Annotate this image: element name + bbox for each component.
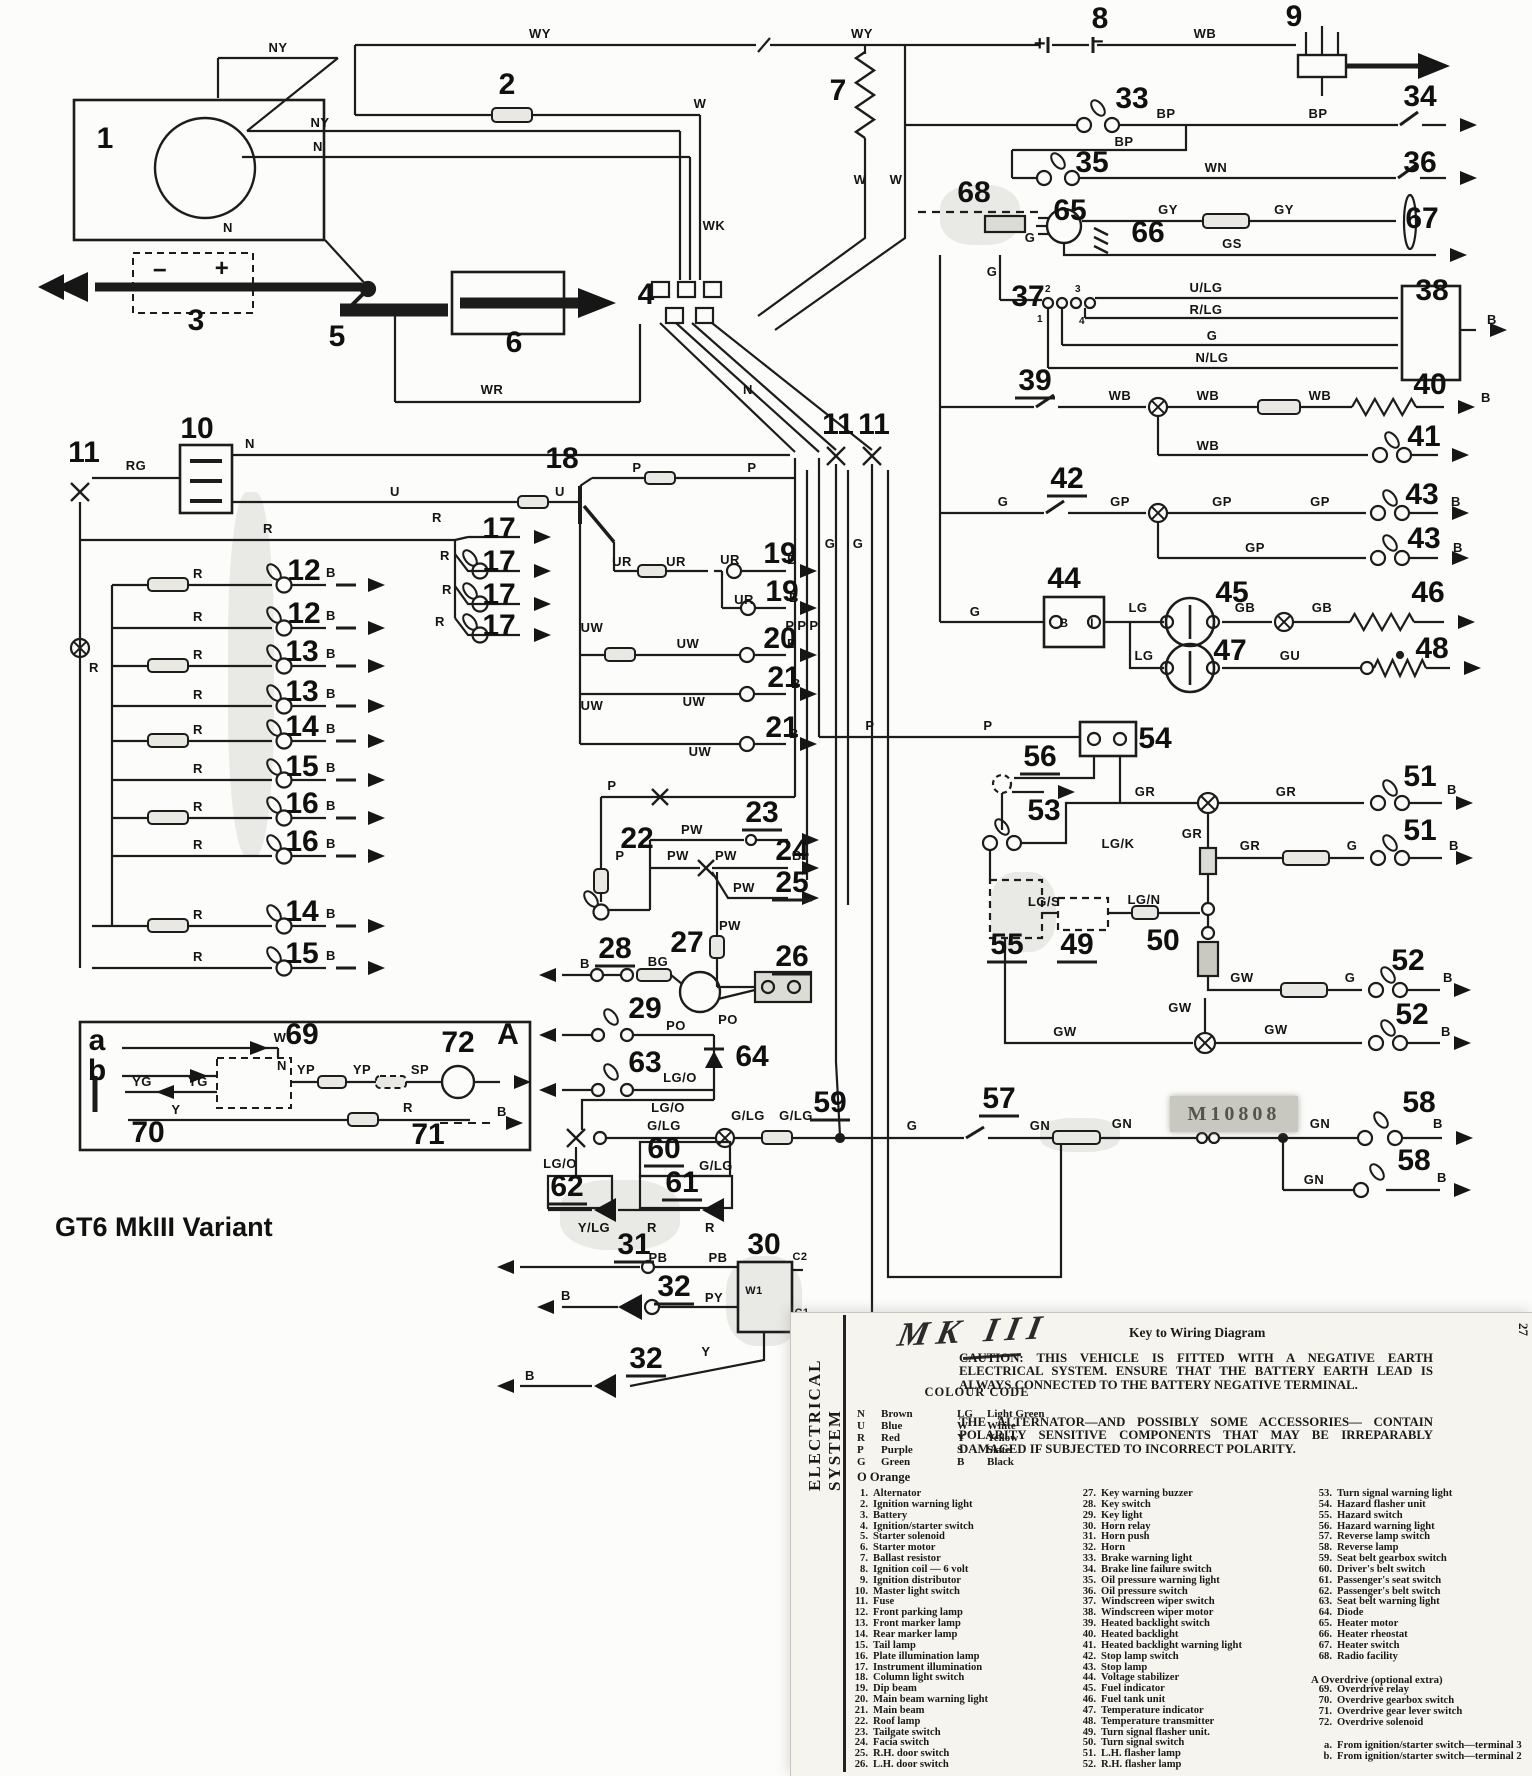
terminal: [1057, 298, 1067, 308]
component-number-label: 3.: [847, 1511, 873, 1522]
wire-label: G: [987, 264, 998, 279]
component-name: Hazard switch: [1337, 1511, 1403, 1522]
terminal: [1197, 1133, 1207, 1143]
wire-label: G: [970, 604, 981, 619]
component-number: 15: [285, 937, 318, 970]
fuse-icon: [638, 565, 666, 577]
page-number: 27: [1515, 1323, 1531, 1336]
wire-label: R: [432, 510, 442, 525]
wire-label: N: [743, 382, 753, 397]
component-number: 63: [628, 1046, 661, 1079]
component-number: 53: [1027, 794, 1060, 827]
component-number: 26: [775, 940, 808, 973]
wire-label: R: [193, 722, 203, 737]
wire-label: N: [245, 436, 255, 451]
wire-label: R: [89, 660, 99, 675]
colour-code-cell: Light Green: [987, 1408, 1087, 1420]
arrow-right-icon: [1456, 796, 1473, 810]
fuse-icon: [1203, 214, 1249, 228]
wire-label: GY: [1158, 202, 1178, 217]
page: { "title": "GT6 MkIII Variant", "stamp":…: [0, 0, 1532, 1776]
arrow-right-icon: [800, 564, 817, 578]
wire-label: B: [525, 1368, 535, 1383]
component-name: Passenger's seat switch: [1337, 1576, 1441, 1587]
lamp-icon: [1371, 796, 1385, 810]
wire-label: R: [193, 761, 203, 776]
arrow-right-icon: [368, 578, 385, 592]
wire-label: P: [809, 618, 818, 633]
wire-label: R: [193, 647, 203, 662]
wire-label: GR: [1182, 826, 1203, 841]
arrow-right-icon: [368, 811, 385, 825]
wire-label: N: [277, 1058, 287, 1073]
wire-label: BP: [1114, 134, 1133, 149]
terminal: [1105, 118, 1119, 132]
component-number: 40: [1413, 368, 1446, 401]
arrow-left-icon: [539, 1028, 556, 1042]
fuse-icon: [148, 919, 188, 932]
wire-label: R: [193, 609, 203, 624]
component-number-label: 52.: [1075, 1760, 1101, 1771]
colour-code-cell: P: [857, 1444, 881, 1456]
wire-segment: [671, 975, 682, 984]
diagram-title: GT6 MkIII Variant: [55, 1212, 273, 1243]
component-number: 65: [1053, 194, 1086, 227]
arrow-right-icon: [1464, 661, 1481, 675]
wire-label: Y: [701, 1344, 710, 1359]
wire-label: P: [865, 718, 874, 733]
terminal: [591, 969, 603, 981]
wire-label: GN: [1310, 1116, 1331, 1131]
component-number: 18: [545, 442, 578, 475]
arrowhead-icon: [156, 1085, 174, 1099]
solenoid-icon: [442, 1066, 474, 1098]
component-number: 11: [858, 408, 890, 441]
wire-label: W: [694, 96, 707, 111]
handwritten-mark: MK III: [894, 1309, 1052, 1355]
component-number: 50: [1146, 924, 1179, 957]
lamp-petal-icon: [265, 683, 284, 703]
lamp-icon: [1395, 796, 1409, 810]
arrow-right-icon: [1458, 615, 1475, 629]
component-list-item: 9.Ignition distributor: [847, 1576, 1077, 1587]
wire-label: PW: [667, 848, 689, 863]
wire-label: UW: [581, 698, 604, 713]
wire-label: LG: [1128, 600, 1147, 615]
wire-label: −: [153, 257, 168, 284]
colour-code-row: UBlueWWhite: [857, 1420, 1097, 1432]
component-name: L.H. door switch: [873, 1760, 949, 1771]
terminal: [1071, 298, 1081, 308]
component-number: 72: [441, 1026, 474, 1059]
wire-label: B: [1443, 970, 1453, 985]
component-number: 35: [1075, 146, 1108, 179]
wire-label: GU: [1280, 648, 1301, 663]
component-number: 51: [1403, 760, 1436, 793]
wire-label: B: [1449, 838, 1459, 853]
component-name: Overdrive solenoid: [1337, 1718, 1423, 1729]
component-box: [1200, 848, 1216, 874]
wire-label: B: [326, 565, 336, 580]
wire-segment: [718, 990, 755, 999]
component-number: 28: [598, 932, 631, 965]
wire-segment: [1046, 501, 1064, 513]
terminal: [1202, 927, 1214, 939]
wire-label: 2: [1045, 284, 1051, 295]
wire-label: R: [193, 907, 203, 922]
wire-label: R/LG: [1189, 302, 1222, 317]
wire-label: R: [442, 582, 452, 597]
component-number-label: 61.: [1311, 1576, 1337, 1587]
wire-label: G/LG: [699, 1158, 733, 1173]
fuse-icon: [492, 108, 532, 122]
terminal: [1209, 1133, 1219, 1143]
arrow-right-icon: [1454, 983, 1471, 997]
terminal: [1354, 1183, 1368, 1197]
component-number: 2: [499, 68, 516, 101]
component-number: a: [89, 1024, 106, 1057]
fuse-icon: [318, 1076, 346, 1088]
wire-label: G: [1347, 838, 1358, 853]
terminal: [621, 1029, 633, 1041]
diode-icon: [594, 1198, 616, 1222]
arrow-right-icon: [1452, 448, 1469, 462]
component-list-item: 29.Key light: [1075, 1511, 1305, 1522]
arrow-left-icon: [539, 968, 556, 982]
component-number: 61: [665, 1166, 698, 1199]
component-number: 14: [285, 710, 319, 743]
wire-segment: [888, 470, 1061, 1277]
component-box: [678, 282, 695, 297]
component-number: 58: [1402, 1086, 1435, 1119]
wire-label: B: [326, 760, 336, 775]
colour-code-cell: Green: [881, 1456, 957, 1468]
lamp-petal-icon: [1383, 430, 1402, 450]
terminal: [1397, 652, 1403, 658]
arrow-right-icon: [368, 734, 385, 748]
lamp-icon: [1369, 1036, 1383, 1050]
diode-icon: [705, 1051, 723, 1068]
component-number: 71: [411, 1118, 444, 1151]
archive-stamp: M10808: [1170, 1096, 1298, 1132]
component-number: 22: [620, 822, 653, 855]
component-list-item: 61.Passenger's seat switch: [1311, 1576, 1531, 1587]
wire-label: WY: [851, 26, 873, 41]
component-number: 55: [990, 928, 1023, 961]
component-number: 66: [1131, 216, 1164, 249]
component-number: 17: [482, 609, 515, 642]
wire-label: B: [326, 608, 336, 623]
arrow-right-icon: [800, 601, 817, 615]
section-vertical-label: ELECTRICAL SYSTEM: [805, 1321, 845, 1491]
component-number: 38: [1415, 274, 1448, 307]
wire-label: LG/N: [1127, 892, 1160, 907]
wire-label: C2: [792, 1251, 807, 1263]
colour-code-orange: O Orange: [857, 1470, 1097, 1485]
wire-label: B: [561, 1288, 571, 1303]
lamp-petal-icon: [1381, 533, 1400, 553]
component-list-item: a.From ignition/starter switch—terminal …: [1311, 1741, 1531, 1752]
lamp-petal-icon: [1381, 488, 1400, 508]
arrow-left-icon: [537, 1300, 554, 1314]
component-number: 17: [482, 545, 515, 578]
component-number: 54: [1138, 722, 1172, 755]
lamp-petal-icon: [265, 795, 284, 815]
component-number: 21: [767, 661, 800, 694]
component-name: Roof lamp: [873, 1717, 920, 1728]
key-panel: ELECTRICAL SYSTEM MK III Key to Wiring D…: [790, 1312, 1532, 1776]
component-number: 5: [329, 320, 346, 353]
wire-segment: [1094, 228, 1108, 235]
arrow-right-icon: [1456, 1131, 1473, 1145]
colour-code-cell: Blue: [881, 1420, 957, 1432]
wire-label: G: [1207, 328, 1218, 343]
component-name: Ignition distributor: [873, 1576, 961, 1587]
arrow-right-icon: [1460, 171, 1477, 185]
wire-label: G: [853, 536, 864, 551]
wire-label: 3: [1075, 284, 1081, 295]
component-number: 25: [775, 866, 808, 899]
component-number: 33: [1115, 82, 1148, 115]
wire-label: B: [1437, 1170, 1447, 1185]
lamp-icon: [1393, 983, 1407, 997]
wire-label: WR: [481, 382, 504, 397]
component-number: 29: [628, 992, 661, 1025]
component-number: 14: [285, 895, 319, 928]
component-number: 31: [617, 1228, 650, 1261]
component-number: 19: [765, 575, 798, 608]
fuse-icon: [605, 648, 635, 661]
component-list-col1: 1.Alternator2.Ignition warning light3.Ba…: [847, 1489, 1077, 1771]
wire-label: B: [580, 956, 590, 971]
wire-label: R: [193, 687, 203, 702]
wire-label: G/LG: [731, 1108, 765, 1123]
alternator-box: [74, 100, 324, 240]
wire-label: W: [890, 172, 903, 187]
resistor-icon: [856, 52, 874, 138]
wire-label: B: [1453, 540, 1463, 555]
lamp-icon: [1373, 448, 1387, 462]
wire-segment: [758, 38, 770, 52]
arrow-left-icon: [497, 1260, 514, 1274]
wire-label: G: [1025, 230, 1036, 245]
wire-label: P: [747, 460, 756, 475]
terminal: [740, 687, 754, 701]
wire-label: P: [797, 618, 806, 633]
wire-label: G/LG: [647, 1118, 681, 1133]
terminal: [1077, 118, 1091, 132]
wire-label: G: [907, 1118, 918, 1133]
terminal: [993, 775, 1011, 793]
wire-label: R: [403, 1100, 413, 1115]
lamp-icon: [1395, 851, 1409, 865]
component-number: 32: [657, 1270, 690, 1303]
component-name: R.H. flasher lamp: [1101, 1760, 1181, 1771]
lamp-petal-icon: [602, 1062, 621, 1082]
terminal: [1202, 903, 1214, 915]
terminal: [1007, 836, 1021, 850]
wire-label: W1: [745, 1285, 763, 1297]
wire-label: B: [326, 721, 336, 736]
terminal: [1037, 171, 1051, 185]
colour-code-cell: White: [987, 1420, 1087, 1432]
fuse-icon: [376, 1076, 406, 1088]
wire-label: I: [1090, 616, 1094, 630]
arrow-right-icon: [1454, 1036, 1471, 1050]
wire-segment: [455, 537, 468, 540]
lamp-petal-icon: [602, 1007, 621, 1027]
wire-label: WB: [1197, 388, 1220, 403]
wire-label: UW: [581, 620, 604, 635]
wire-label: UW: [689, 744, 712, 759]
wire-label: GR: [1240, 838, 1261, 853]
wire-label: YP: [353, 1062, 371, 1077]
component-number: 52: [1395, 998, 1428, 1031]
component-list-item: 16.Plate illumination lamp: [847, 1652, 1077, 1663]
component-number: 56: [1023, 740, 1056, 773]
component-number: 16: [285, 787, 318, 820]
wire-label: B: [1059, 616, 1068, 630]
wire-label: U/LG: [1189, 280, 1222, 295]
terminal: [594, 1132, 606, 1144]
colour-code-cell: LG: [957, 1408, 987, 1420]
arrow-right-icon: [534, 530, 551, 544]
wire-label: G/LG: [779, 1108, 813, 1123]
component-name: From ignition/starter switch—terminal 3: [1337, 1741, 1522, 1752]
wire-label: GB: [1312, 600, 1333, 615]
colour-code-row: GGreenBBlack: [857, 1456, 1097, 1468]
component-number: 43: [1407, 522, 1440, 555]
terminal: [1358, 1131, 1372, 1145]
arrow-right-icon: [514, 1075, 531, 1089]
arrow-left-icon: [497, 1379, 514, 1393]
component-name: Oil pressure warning light: [1101, 1576, 1220, 1587]
colour-code-cell: W: [957, 1420, 987, 1432]
wire-segment: [660, 323, 795, 452]
wire-label: B: [1441, 1024, 1451, 1039]
component-number-label: 55.: [1311, 1511, 1337, 1522]
fuse-icon: [762, 1131, 792, 1144]
terminal: [740, 737, 754, 751]
component-number-label: 48.: [1075, 1717, 1101, 1728]
horn-icon: [594, 1374, 616, 1398]
component-number: 42: [1050, 462, 1083, 495]
lamp-petal-icon: [265, 643, 284, 663]
fuse-icon: [348, 1113, 378, 1126]
arrow-right-icon: [368, 773, 385, 787]
wire-label: PW: [733, 880, 755, 895]
arrow-right-icon: [534, 564, 551, 578]
wire-label: PW: [681, 822, 703, 837]
fuse-icon: [148, 578, 188, 591]
component-number: 51: [1403, 814, 1436, 847]
lamp-icon: [1371, 851, 1385, 865]
component-number-label: 26.: [847, 1760, 873, 1771]
colour-code-cell: R: [857, 1432, 881, 1444]
colour-code-heading: COLOUR CODE: [857, 1385, 1097, 1400]
component-number: 27: [670, 926, 703, 959]
lamp-icon: [1371, 506, 1385, 520]
wire-label: PW: [719, 918, 741, 933]
wire-label: UW: [677, 636, 700, 651]
colour-code-row: RRedYYellow: [857, 1432, 1097, 1444]
wire-label: BP: [1308, 106, 1327, 121]
arrow-right-icon: [800, 737, 817, 751]
lamp-icon: [1369, 983, 1383, 997]
wire-label: LG/K: [1101, 836, 1134, 851]
lamp-petal-icon: [1381, 833, 1400, 853]
component-list-item: 22.Roof lamp: [847, 1717, 1077, 1728]
wire-label: B: [326, 836, 336, 851]
component-box: [985, 216, 1025, 232]
wire-label: LG/O: [663, 1070, 697, 1085]
caution-label: CAUTION:: [959, 1351, 1024, 1365]
fuse-icon: [148, 811, 188, 824]
wire-label: R: [440, 548, 450, 563]
arrow-right-icon: [1458, 400, 1475, 414]
wire-label: GP: [1212, 494, 1232, 509]
component-number-label: 35.: [1075, 1576, 1101, 1587]
wire-label: LG: [1134, 648, 1153, 663]
wire-label: PB: [708, 1250, 727, 1265]
wire-label: WY: [529, 26, 551, 41]
component-number: 59: [813, 1086, 846, 1119]
wire-label: RG: [126, 458, 147, 473]
colour-code-cell: Black: [987, 1456, 1087, 1468]
wire-label: N/LG: [1195, 350, 1228, 365]
lamp-icon: [1393, 1036, 1407, 1050]
wire-label: BG: [648, 954, 669, 969]
wire-label: UR: [720, 552, 740, 567]
lamp-petal-icon: [1368, 1162, 1387, 1182]
component-number: 34: [1403, 80, 1437, 113]
component-list-item: 48.Temperature transmitter: [1075, 1717, 1305, 1728]
arrow-right-icon: [1454, 1183, 1471, 1197]
wire-label: N: [223, 220, 233, 235]
component-number: 12: [287, 554, 320, 587]
wire-label: Y: [171, 1102, 180, 1117]
wire-segment: [580, 478, 592, 486]
component-list-item: 26.L.H. door switch: [847, 1760, 1077, 1771]
wire-label: B: [1447, 782, 1457, 797]
lamp-petal-icon: [265, 562, 284, 582]
component-number: 68: [957, 176, 990, 209]
component-number-label: 42.: [1075, 1652, 1101, 1663]
component-list-item: 72.Overdrive solenoid: [1311, 1718, 1531, 1729]
wire-label: GW: [1168, 1000, 1192, 1015]
wire-label: LG/O: [651, 1100, 685, 1115]
wire-segment: [1094, 246, 1108, 253]
colour-code-cell: N: [857, 1408, 881, 1420]
wire-label: P: [607, 778, 616, 793]
fuse-icon: [518, 496, 548, 508]
colour-code-cell: Y: [957, 1432, 987, 1444]
colour-code-cell: S: [957, 1444, 987, 1456]
component-number: 64: [735, 1040, 769, 1073]
component-number-label: 68.: [1311, 1652, 1337, 1663]
wire-segment: [584, 506, 614, 542]
arrow-right-icon: [368, 621, 385, 635]
component-box: [704, 282, 721, 297]
component-list-col3: 53.Turn signal warning light54.Hazard fl…: [1311, 1489, 1531, 1762]
wire-label: B: [326, 798, 336, 813]
wire-label: R: [263, 521, 273, 536]
component-number-label: 72.: [1311, 1718, 1337, 1729]
wire-label: R: [193, 799, 203, 814]
arrow-left-icon: [539, 1083, 556, 1097]
horn-icon: [618, 1294, 642, 1320]
terminal: [621, 1084, 633, 1096]
